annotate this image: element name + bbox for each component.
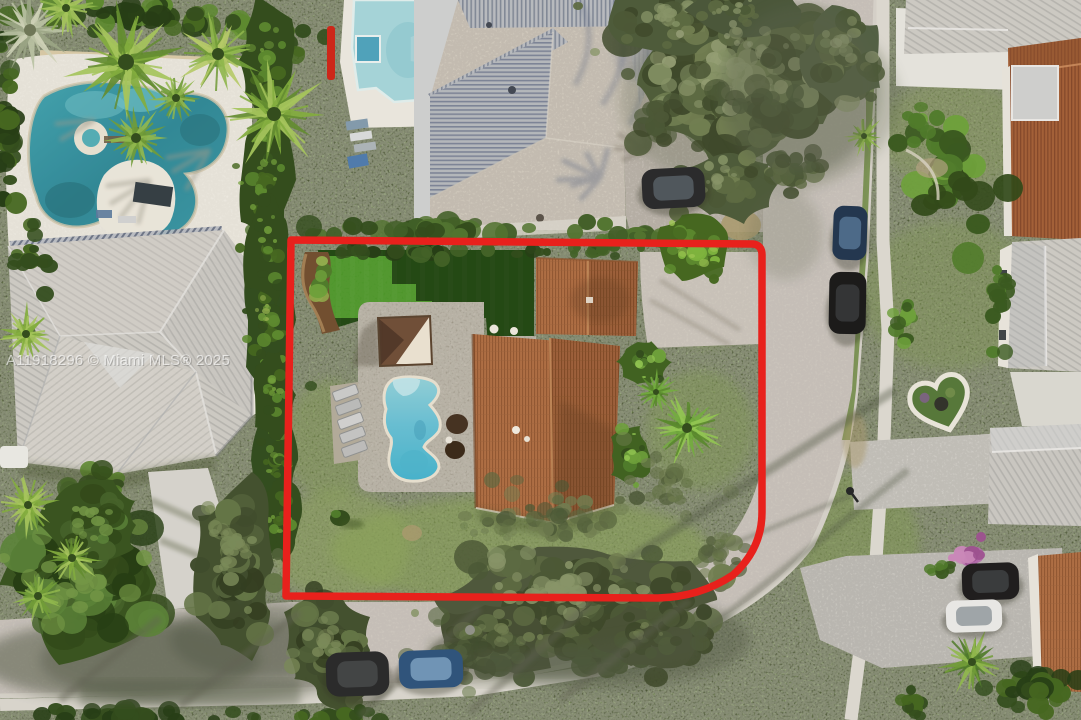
svg-text:A11918296 © Miami MLS® 2025: A11918296 © Miami MLS® 2025 <box>6 352 230 369</box>
